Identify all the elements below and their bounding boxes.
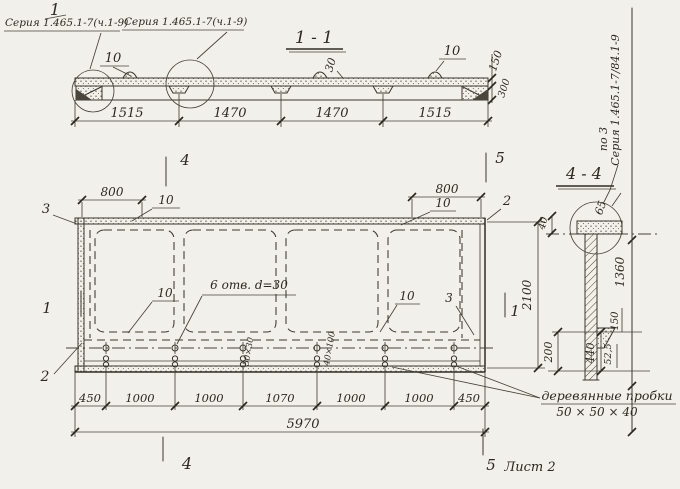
dim-200: 200 [542,342,555,364]
dim-800-right: 800 [436,182,459,196]
dim-1070: 1070 [265,391,294,405]
top-boss-3 [428,72,442,78]
section-marker-4-bottom: 4 [163,437,192,473]
dim-150: 150 [486,49,505,73]
slot-label-a: 50×30 [242,336,257,367]
label-10-left: 10 [105,51,122,66]
label-30: 30 [322,56,339,73]
dim-1470-a: 1470 [213,106,246,121]
right-end-block [462,86,488,100]
bay-outline-1 [95,230,174,332]
marker-5-bottom-label: 5 [486,456,496,474]
dim-52-5: 52,5 [603,343,614,364]
plan-view: 800 800 10 10 3 2 10 6 отв. d=30 10 3 [40,182,545,437]
callout-2-leader [197,32,227,59]
marker-4-top-label: 4 [179,151,190,169]
left-end-block [76,86,102,100]
dim-1360: 1360 [613,256,627,287]
flange-section [577,221,622,234]
marker-4-bottom-label: 4 [181,454,192,473]
section-marker-5-bottom: 5 Лист 2 [483,429,556,475]
dim-450-b: 450 [457,391,480,405]
dim-440: 440 [584,343,597,365]
marker-1-left-label: 1 [42,299,52,317]
section-marker-4-top: 4 [166,151,190,186]
drawing-canvas: 1 Серия 1.465.1-7(ч.1-9) Серия 1.465.1-7… [0,0,680,489]
label-2-bottom-left: 2 [40,369,50,385]
dim-300: 300 [496,77,513,99]
panel-slab-section [75,78,488,86]
label-3-inner-right: 3 [445,291,453,305]
dim-total-5970: 5970 [286,417,319,432]
dim-2100-group: 2100 [487,218,545,372]
plan-bottom-edge [75,366,485,372]
rib-section-1 [169,86,189,93]
plan-bottom-dims: 450 1000 1000 1070 1000 1000 450 5970 [71,368,489,437]
label-10-inner-right: 10 [399,289,415,303]
section-1-1-title: 1 - 1 [295,28,333,48]
marker-5-top-label: 5 [495,149,505,167]
dim-40: 40 [536,215,550,232]
series-callout-2: Серия 1.465.1-7(ч.1-9) [124,16,247,28]
bay-outline-3 [286,230,378,332]
dim-1470-b: 1470 [315,106,348,121]
rib-section-2 [271,86,291,93]
label-3-left: 3 [42,202,50,217]
section-marker-1-left: 1 [42,291,94,317]
dim-150-side: 150 [610,311,621,331]
hole-1 [103,342,109,354]
plug-symbols [103,356,456,367]
dim-1000-a: 1000 [125,391,154,405]
label-10-inner-left: 10 [157,286,173,300]
marker-1-right-label: 1 [510,302,520,320]
label-10-top-left: 10 [158,193,174,207]
slot-label-b: 40×100 [322,330,338,367]
dim-1000-c: 1000 [336,391,365,405]
top-boss-2 [313,72,327,78]
plan-top-edge [75,218,485,224]
drawing-sheet: 1 Серия 1.465.1-7(ч.1-9) Серия 1.465.1-7… [0,0,680,489]
dim-1000-b: 1000 [194,391,223,405]
series-reference-leader [603,165,618,204]
header-callouts: 1 Серия 1.465.1-7(ч.1-9) Серия 1.465.1-7… [4,0,247,69]
series-reference-prefix: по 3 [597,127,610,151]
series-reference-vertical: Серия 1.465.1-7/84.1-9 [609,34,622,165]
label-10-top-right: 10 [435,196,451,210]
bay-outline-4 [388,230,460,332]
sheet-reference: Лист 2 [503,460,555,475]
section-marker-5-top: 5 [486,149,508,182]
dim-2100: 2100 [520,279,534,311]
section-1-1: 1 - 1 10 10 30 [71,28,513,127]
label-2-top-right: 2 [502,194,511,209]
dim-1515-a: 1515 [110,106,143,121]
dim-800-left-group: 800 [78,185,146,217]
plugs-note-line1: деревянные пробки [541,388,672,403]
plugs-note-line2: 50 × 50 × 40 [556,405,638,419]
series-callout-1: Серия 1.465.1-7(ч.1-9) [5,17,128,29]
plugs-note: деревянные пробки 50 × 50 × 40 [392,366,676,419]
detail-leader-4-4 [612,193,621,206]
section-marker-1-right: 1 [495,293,520,320]
section-1-1-dim-row: 1515 1470 1470 1515 [71,94,492,127]
label-10-right: 10 [444,44,461,59]
dim-1515-b: 1515 [418,106,451,121]
rib-section-3 [373,86,393,93]
dim-450-a: 450 [78,391,101,405]
dim-800-left: 800 [101,185,124,199]
dim-1000-d: 1000 [404,391,433,405]
section-4-4: 4 - 4 40 65 1360 200 440 52,5 150 [536,164,658,390]
callout-1-leader [90,33,101,69]
section-4-4-title: 4 - 4 [565,164,602,183]
holes-note: 6 отв. d=30 [210,278,288,292]
